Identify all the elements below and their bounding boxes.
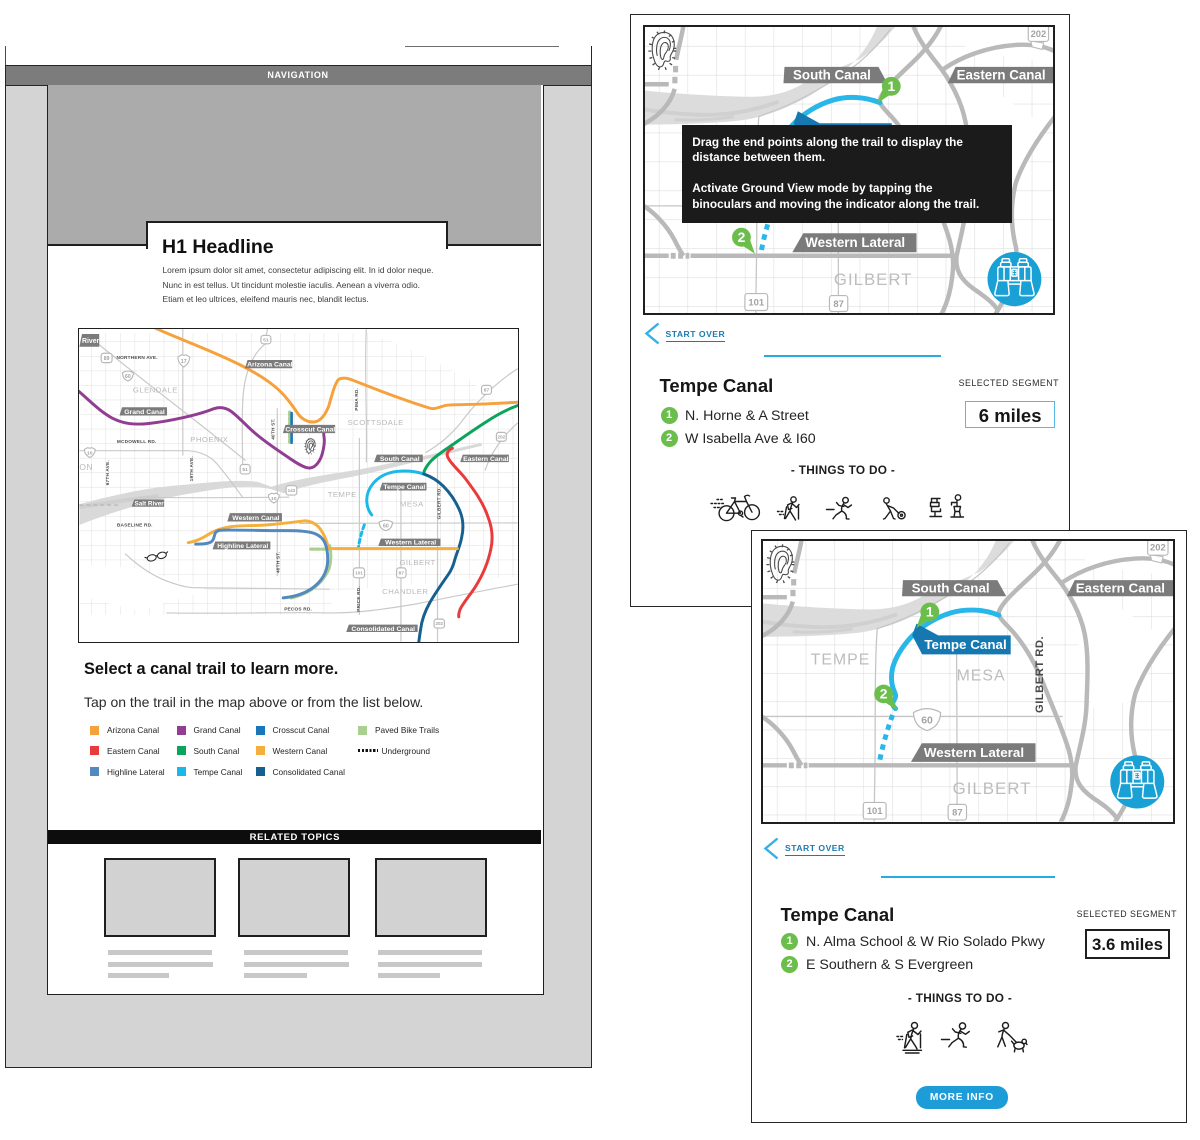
svg-text:Grand Canal: Grand Canal bbox=[124, 408, 165, 415]
svg-text:1: 1 bbox=[887, 78, 895, 94]
svg-text:NORTHERN AVE.: NORTHERN AVE. bbox=[116, 355, 157, 361]
svg-text:GLENDALE: GLENDALE bbox=[132, 385, 177, 394]
svg-text:Eastern Canal: Eastern Canal bbox=[463, 455, 509, 462]
svg-text:60: 60 bbox=[382, 523, 388, 529]
svg-text:Salt River: Salt River bbox=[134, 500, 164, 507]
svg-text:87: 87 bbox=[483, 387, 489, 393]
svg-text:89: 89 bbox=[103, 355, 109, 361]
svg-text:2: 2 bbox=[737, 229, 745, 245]
svg-text:Crosscut Canal: Crosscut Canal bbox=[285, 426, 335, 433]
svg-text:Western Canal: Western Canal bbox=[232, 514, 279, 521]
svg-text:PECOS RD.: PECOS RD. bbox=[284, 606, 312, 612]
svg-text:60: 60 bbox=[125, 373, 131, 379]
svg-text:BASELINE RD.: BASELINE RD. bbox=[116, 522, 152, 528]
svg-text:101: 101 bbox=[355, 570, 363, 575]
svg-text:River: River bbox=[81, 337, 99, 344]
svg-text:PRICE RD.: PRICE RD. bbox=[355, 586, 361, 612]
svg-text:40TH ST.: 40TH ST. bbox=[275, 551, 281, 572]
svg-text:143: 143 bbox=[287, 488, 295, 493]
svg-text:South Canal: South Canal bbox=[379, 455, 419, 462]
svg-text:87: 87 bbox=[398, 570, 404, 576]
svg-text:Consolidated Canal: Consolidated Canal bbox=[351, 625, 415, 632]
svg-text:202: 202 bbox=[497, 434, 505, 439]
svg-text:SCOTTSDALE: SCOTTSDALE bbox=[347, 417, 403, 426]
svg-text:MCDOWELL RD.: MCDOWELL RD. bbox=[116, 439, 156, 445]
svg-text:10: 10 bbox=[271, 495, 277, 501]
svg-text:PIMA RD.: PIMA RD. bbox=[354, 387, 360, 410]
svg-text:Highline Lateral: Highline Lateral bbox=[217, 542, 268, 549]
svg-text:1: 1 bbox=[926, 605, 934, 620]
svg-text:GILBERT RD.: GILBERT RD. bbox=[436, 486, 442, 518]
svg-text:Tempe Canal: Tempe Canal bbox=[383, 484, 425, 491]
svg-text:Arizona Canal: Arizona Canal bbox=[247, 361, 293, 368]
svg-text:MESA: MESA bbox=[399, 499, 423, 508]
svg-text:40TH ST.: 40TH ST. bbox=[270, 418, 276, 439]
svg-text:202: 202 bbox=[435, 621, 443, 626]
svg-text:PHOENIX: PHOENIX bbox=[190, 434, 228, 443]
svg-text:19TH AVE.: 19TH AVE. bbox=[188, 456, 194, 481]
svg-text:2: 2 bbox=[880, 687, 888, 702]
svg-text:51: 51 bbox=[242, 467, 248, 473]
svg-text:Tempe Canal: Tempe Canal bbox=[924, 637, 1006, 652]
svg-text:17: 17 bbox=[180, 358, 186, 364]
svg-text:67TH AVE.: 67TH AVE. bbox=[104, 460, 110, 485]
svg-text:10: 10 bbox=[87, 450, 93, 456]
svg-text:CHANDLER: CHANDLER bbox=[382, 587, 428, 596]
svg-text:ON: ON bbox=[79, 461, 93, 471]
svg-text:51: 51 bbox=[263, 337, 269, 343]
svg-text:GILBERT: GILBERT bbox=[399, 557, 435, 566]
svg-text:TEMPE: TEMPE bbox=[327, 490, 356, 499]
svg-text:Western Lateral: Western Lateral bbox=[385, 539, 436, 546]
